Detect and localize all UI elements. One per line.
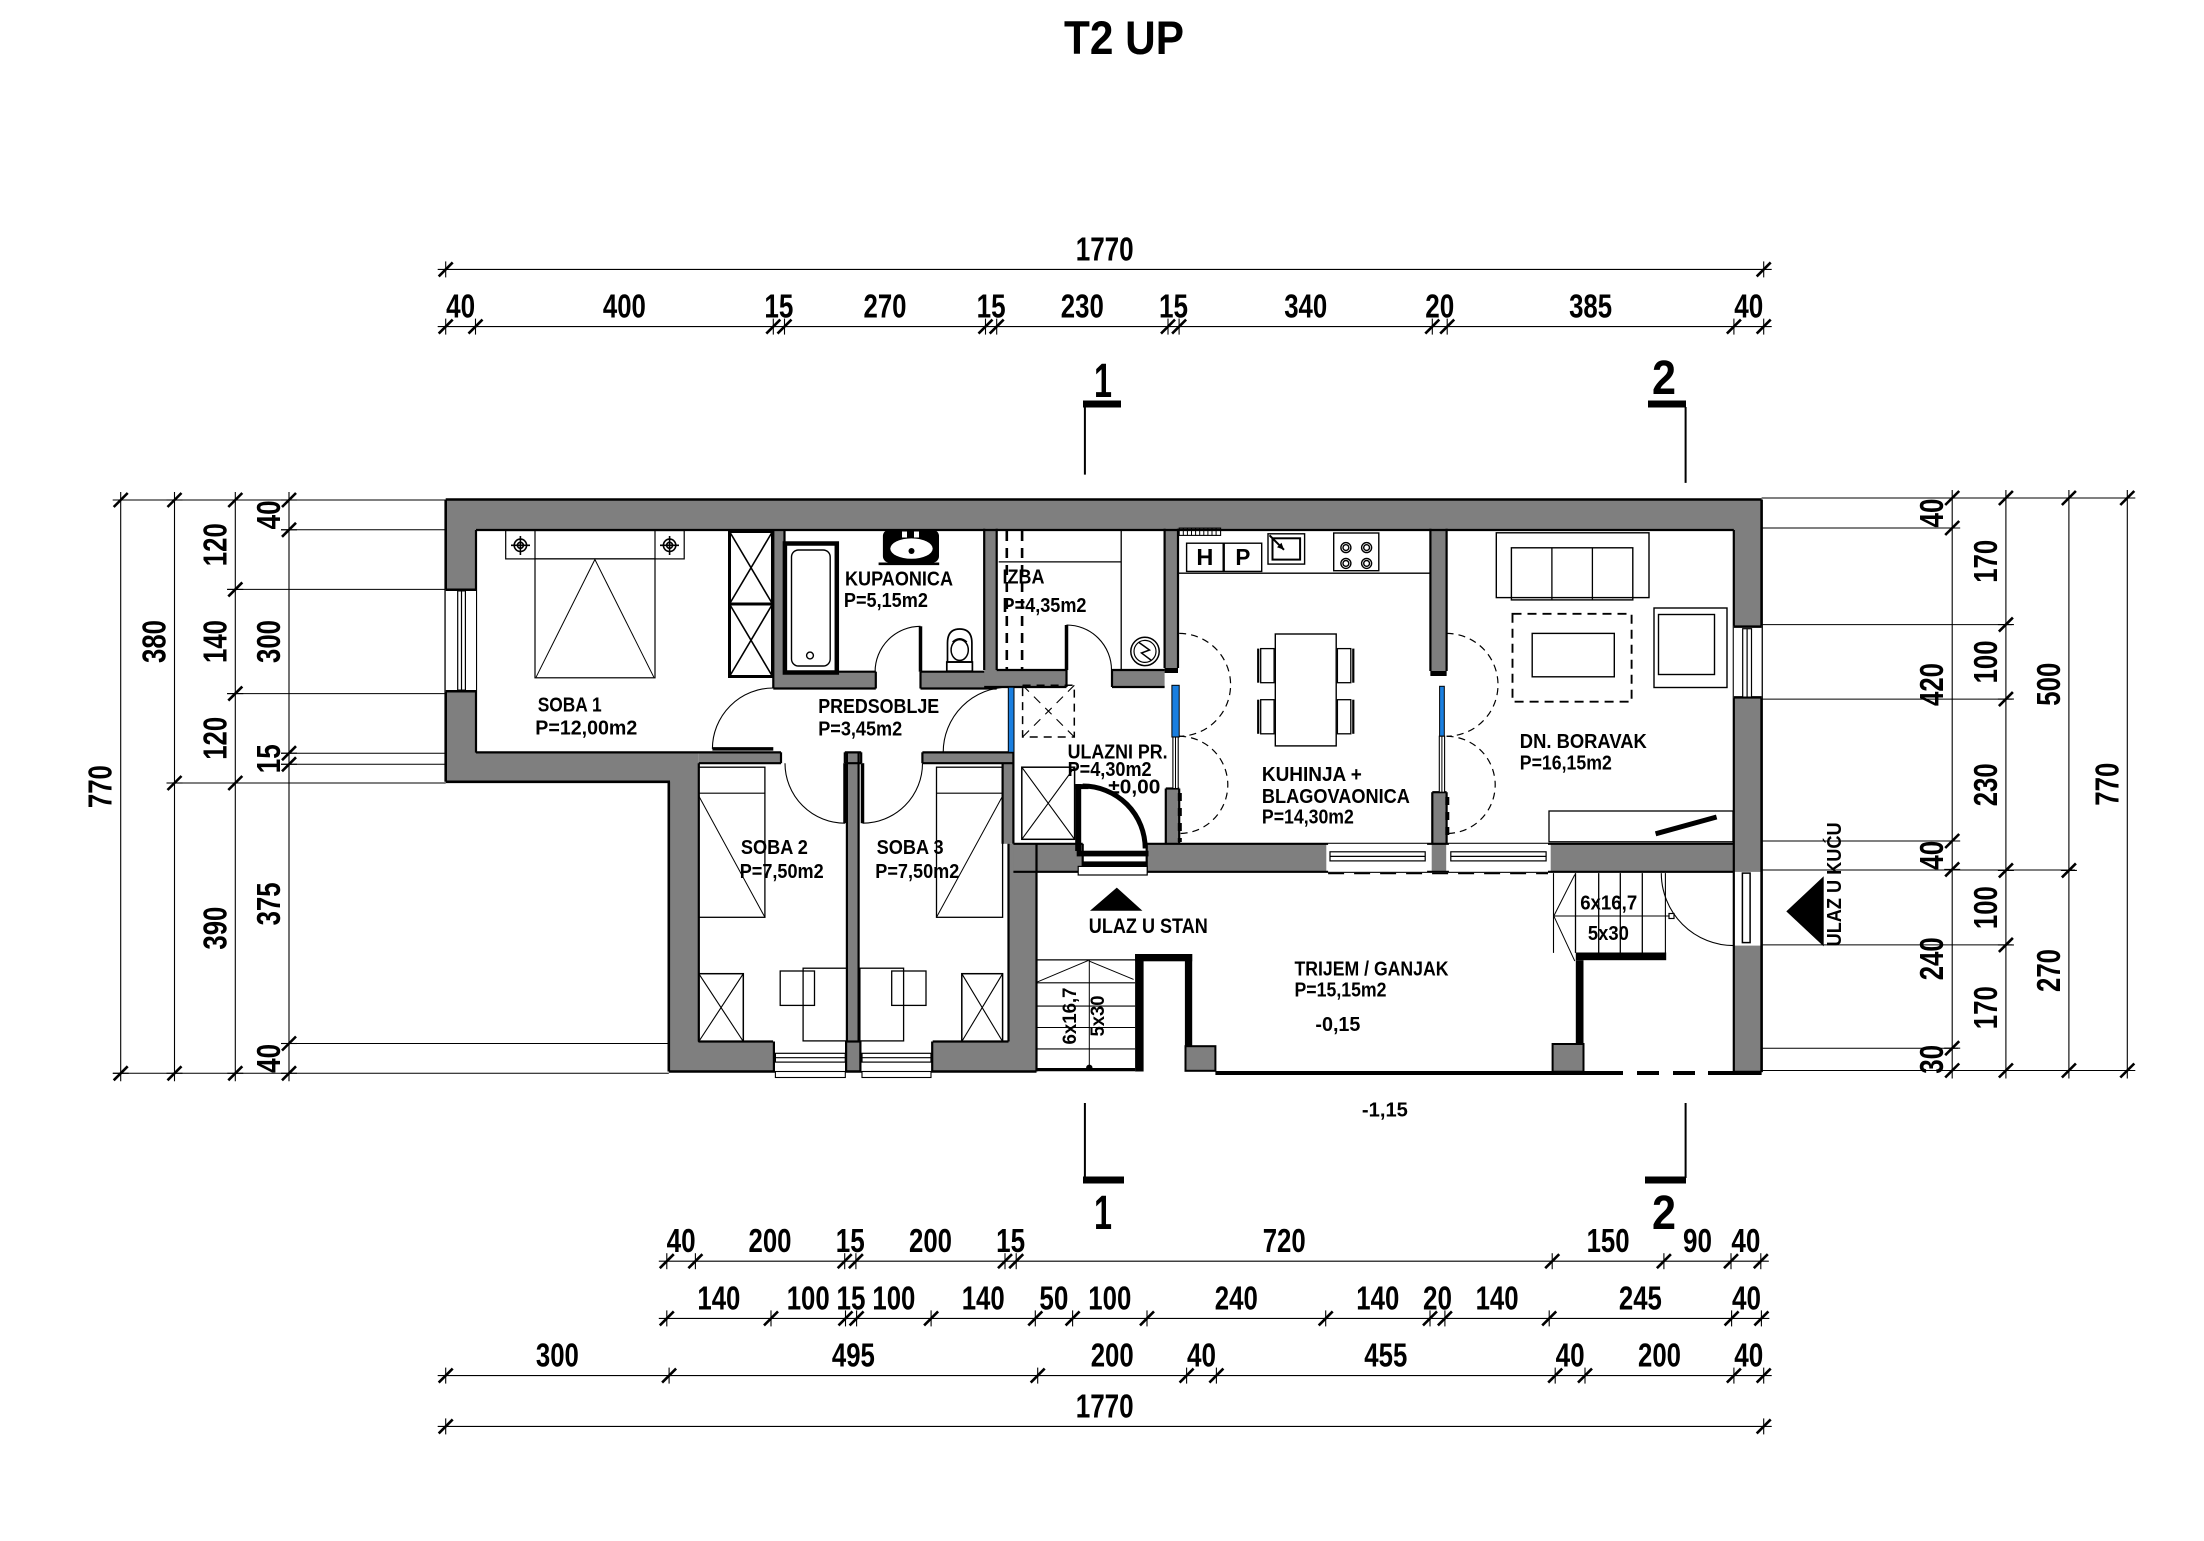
svg-text:140: 140 <box>1356 1279 1399 1316</box>
svg-text:SOBA 3: SOBA 3 <box>877 837 944 859</box>
svg-text:200: 200 <box>749 1222 792 1259</box>
svg-text:380: 380 <box>136 620 173 663</box>
svg-text:40: 40 <box>1734 1337 1763 1374</box>
svg-text:6x16,7: 6x16,7 <box>1580 893 1637 915</box>
svg-text:170: 170 <box>1967 986 2004 1029</box>
svg-text:300: 300 <box>250 620 287 663</box>
svg-text:500: 500 <box>2030 663 2067 706</box>
svg-text:720: 720 <box>1263 1222 1306 1259</box>
svg-text:375: 375 <box>250 882 287 925</box>
svg-text:40: 40 <box>1734 288 1763 325</box>
svg-text:340: 340 <box>1284 288 1327 325</box>
svg-text:200: 200 <box>1091 1337 1134 1374</box>
svg-text:20: 20 <box>1423 1279 1452 1316</box>
svg-text:40: 40 <box>1556 1337 1585 1374</box>
svg-text:5x30: 5x30 <box>1088 996 1109 1037</box>
svg-text:-0,15: -0,15 <box>1315 1014 1360 1036</box>
svg-text:20: 20 <box>1425 288 1454 325</box>
svg-text:90: 90 <box>1683 1222 1712 1259</box>
svg-text:495: 495 <box>832 1337 875 1374</box>
svg-text:15: 15 <box>836 1222 865 1259</box>
svg-text:15: 15 <box>250 744 287 773</box>
svg-text:100: 100 <box>1967 886 2004 929</box>
svg-text:±0,00: ±0,00 <box>1108 777 1160 799</box>
svg-text:T2 UP: T2 UP <box>1064 11 1184 64</box>
svg-text:KUPAONICA: KUPAONICA <box>845 569 953 591</box>
svg-text:PREDSOBLJE: PREDSOBLJE <box>818 696 939 718</box>
svg-text:200: 200 <box>1638 1337 1681 1374</box>
svg-text:770: 770 <box>2088 763 2125 806</box>
svg-text:150: 150 <box>1587 1222 1630 1259</box>
svg-text:P=12,00m2: P=12,00m2 <box>535 718 637 740</box>
svg-text:140: 140 <box>1476 1279 1519 1316</box>
svg-text:H: H <box>1196 544 1213 570</box>
svg-text:15: 15 <box>1159 288 1188 325</box>
svg-text:ULAZ U STAN: ULAZ U STAN <box>1089 915 1208 938</box>
svg-text:455: 455 <box>1364 1337 1407 1374</box>
svg-text:230: 230 <box>1061 288 1104 325</box>
svg-text:P=16,15m2: P=16,15m2 <box>1520 753 1612 775</box>
svg-text:245: 245 <box>1619 1279 1662 1316</box>
svg-text:240: 240 <box>1913 937 1950 980</box>
svg-text:2: 2 <box>1652 352 1676 405</box>
svg-text:-1,15: -1,15 <box>1362 1100 1408 1122</box>
svg-text:300: 300 <box>536 1337 579 1374</box>
svg-text:200: 200 <box>909 1222 952 1259</box>
svg-text:140: 140 <box>196 620 233 663</box>
svg-text:15: 15 <box>837 1279 866 1316</box>
svg-text:SOBA 2: SOBA 2 <box>741 837 808 859</box>
svg-text:100: 100 <box>787 1279 830 1316</box>
svg-text:6x16,7: 6x16,7 <box>1060 988 1081 1045</box>
svg-text:40: 40 <box>446 288 475 325</box>
svg-text:2: 2 <box>1652 1187 1676 1240</box>
svg-text:400: 400 <box>603 288 646 325</box>
svg-text:40: 40 <box>1913 499 1950 528</box>
svg-text:P=4,35m2: P=4,35m2 <box>1003 595 1087 617</box>
svg-text:140: 140 <box>697 1279 740 1316</box>
svg-text:15: 15 <box>977 288 1006 325</box>
svg-text:230: 230 <box>1967 763 2004 806</box>
svg-text:240: 240 <box>1215 1279 1258 1316</box>
svg-text:40: 40 <box>1187 1337 1216 1374</box>
svg-text:100: 100 <box>1967 640 2004 683</box>
svg-text:1770: 1770 <box>1076 230 1134 267</box>
svg-text:385: 385 <box>1569 288 1612 325</box>
svg-text:390: 390 <box>196 907 233 950</box>
svg-text:BLAGOVAONICA: BLAGOVAONICA <box>1262 786 1410 808</box>
svg-text:100: 100 <box>872 1279 915 1316</box>
svg-text:120: 120 <box>196 717 233 760</box>
svg-text:P=3,45m2: P=3,45m2 <box>818 719 902 741</box>
svg-text:40: 40 <box>1913 841 1950 870</box>
svg-text:P: P <box>1235 544 1250 570</box>
svg-text:270: 270 <box>864 288 907 325</box>
svg-text:P=7,50m2: P=7,50m2 <box>740 861 824 883</box>
svg-text:40: 40 <box>250 1044 287 1073</box>
svg-text:100: 100 <box>1088 1279 1131 1316</box>
svg-text:5x30: 5x30 <box>1588 923 1629 945</box>
svg-text:IZBA: IZBA <box>1003 567 1045 589</box>
svg-text:TRIJEM / GANJAK: TRIJEM / GANJAK <box>1295 959 1449 981</box>
svg-text:50: 50 <box>1039 1279 1068 1316</box>
svg-text:170: 170 <box>1967 540 2004 583</box>
svg-text:120: 120 <box>196 523 233 566</box>
svg-text:40: 40 <box>250 500 287 529</box>
svg-text:DN. BORAVAK: DN. BORAVAK <box>1520 731 1648 753</box>
svg-text:140: 140 <box>962 1279 1005 1316</box>
svg-text:SOBA 1: SOBA 1 <box>538 695 602 717</box>
svg-text:P=5,15m2: P=5,15m2 <box>844 590 928 612</box>
svg-text:1770: 1770 <box>1076 1387 1134 1424</box>
svg-text:770: 770 <box>82 765 119 808</box>
svg-text:KUHINJA +: KUHINJA + <box>1262 764 1362 786</box>
svg-text:1: 1 <box>1094 355 1112 408</box>
svg-text:30: 30 <box>1913 1045 1950 1074</box>
svg-text:270: 270 <box>2030 949 2067 992</box>
svg-text:P=15,15m2: P=15,15m2 <box>1295 980 1387 1002</box>
svg-text:P=14,30m2: P=14,30m2 <box>1262 807 1354 829</box>
svg-text:15: 15 <box>764 288 793 325</box>
svg-text:40: 40 <box>1731 1222 1760 1259</box>
svg-text:40: 40 <box>667 1222 696 1259</box>
svg-text:15: 15 <box>996 1222 1025 1259</box>
svg-text:P=7,50m2: P=7,50m2 <box>875 861 959 883</box>
svg-text:1: 1 <box>1094 1187 1112 1240</box>
svg-text:40: 40 <box>1732 1279 1761 1316</box>
